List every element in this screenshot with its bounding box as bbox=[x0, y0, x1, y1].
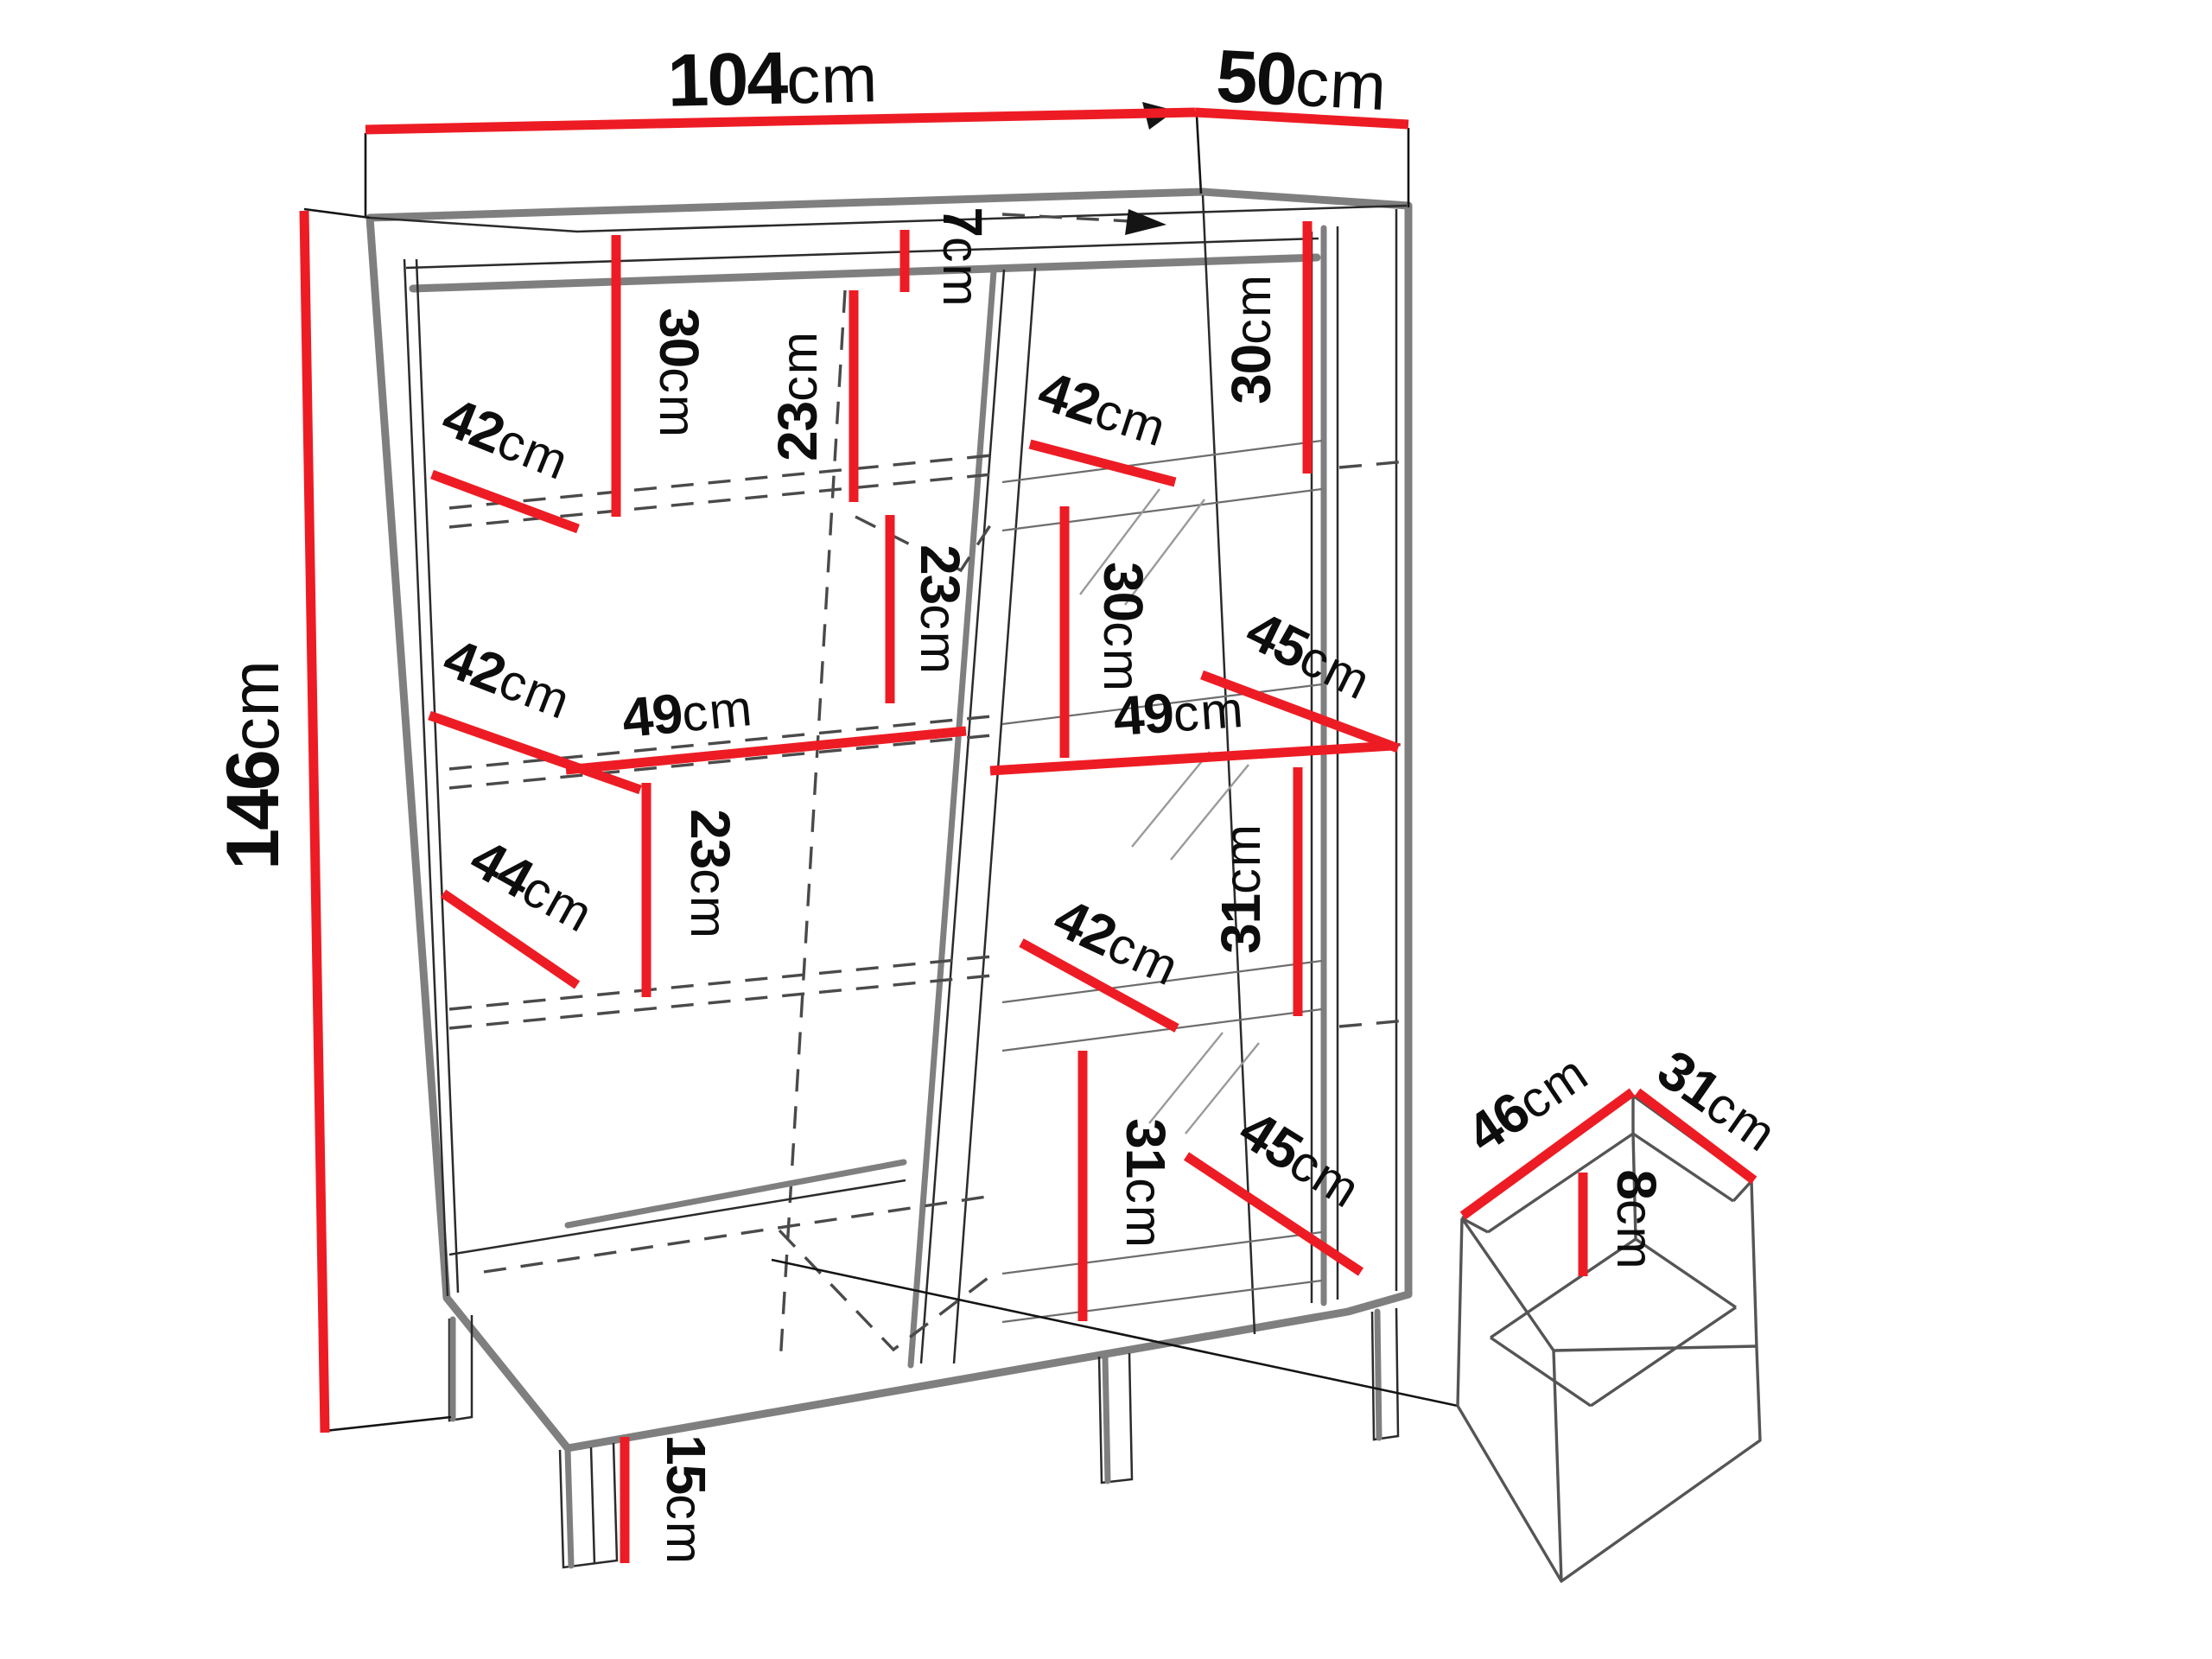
dim-right-depth-42-top: 42cm bbox=[1030, 359, 1175, 482]
dim-width: 104cm bbox=[365, 35, 1195, 130]
dim-drawer-depth-label: 31cm bbox=[1647, 1038, 1790, 1164]
dim-top-gap-label: 7cm bbox=[931, 207, 994, 308]
dim-left-space-23-top-label: 23cm bbox=[766, 330, 829, 461]
dim-drawer-inner-height-label: 8cm bbox=[1605, 1169, 1668, 1270]
dim-left-width-49-label: 49cm bbox=[620, 675, 756, 749]
dim-height-label: 146cm bbox=[212, 659, 295, 869]
dim-right-space-31-low: 31cm bbox=[1083, 1051, 1177, 1321]
dim-right-space-30-mid-label: 30cm bbox=[1092, 562, 1154, 693]
dim-height-line bbox=[304, 211, 325, 1433]
dim-right-depth-42-low: 42cm bbox=[1021, 886, 1190, 1028]
dim-right-space-31-top-label: 31cm bbox=[1210, 823, 1272, 954]
dim-left-space-30-label: 30cm bbox=[648, 308, 710, 439]
furniture-dimension-diagram: 104cm 50cm 146cm 7cm 15cm 30cm 42cm 23cm… bbox=[0, 0, 2212, 1659]
dim-right-depth-42-low-label: 42cm bbox=[1045, 886, 1190, 997]
dim-drawer-depth: 31cm bbox=[1637, 1038, 1789, 1180]
dim-left-depth-44: 44cm bbox=[443, 826, 606, 985]
dim-left-depth-42-top-label: 42cm bbox=[434, 385, 579, 493]
dim-width-label: 104cm bbox=[667, 35, 880, 122]
dim-right-space-31-top: 31cm bbox=[1210, 767, 1298, 1016]
drawer-detail bbox=[1458, 1096, 1760, 1581]
dim-left-space-23-mid-label: 23cm bbox=[909, 544, 971, 676]
dim-drawer-width-label: 46cm bbox=[1456, 1039, 1599, 1165]
dim-right-depth-42-top-label: 42cm bbox=[1031, 359, 1175, 458]
cabinet-legs bbox=[449, 1308, 1398, 1567]
dim-left-space-23-low-label: 23cm bbox=[679, 809, 741, 940]
dim-leg-height: 15cm bbox=[625, 1434, 717, 1566]
dim-right-space-30-top-label: 30cm bbox=[1220, 273, 1282, 404]
dim-leg-height-label: 15cm bbox=[655, 1434, 717, 1566]
dim-depth: 50cm bbox=[1195, 35, 1408, 126]
dim-right-width-49-label: 49cm bbox=[1111, 677, 1246, 747]
cabinet-center-divider bbox=[911, 268, 1035, 1365]
dim-left-depth-44-label: 44cm bbox=[461, 826, 606, 944]
dim-right-space-31-low-label: 31cm bbox=[1115, 1118, 1177, 1249]
dim-depth-label: 50cm bbox=[1214, 35, 1389, 126]
dim-left-depth-42-mid-label: 42cm bbox=[435, 626, 581, 732]
dim-left-width-49: 49cm bbox=[566, 675, 966, 770]
drawer-leader-line bbox=[772, 1260, 1458, 1406]
dim-left-space-23-mid: 23cm bbox=[890, 515, 971, 703]
dim-left-space-23-low: 23cm bbox=[646, 783, 741, 997]
dim-top-gap: 7cm bbox=[905, 207, 994, 308]
dim-height: 146cm bbox=[212, 211, 325, 1433]
diagram-stage: 104cm 50cm 146cm 7cm 15cm 30cm 42cm 23cm… bbox=[0, 0, 2212, 1659]
dim-drawer-inner-height: 8cm bbox=[1583, 1169, 1668, 1276]
